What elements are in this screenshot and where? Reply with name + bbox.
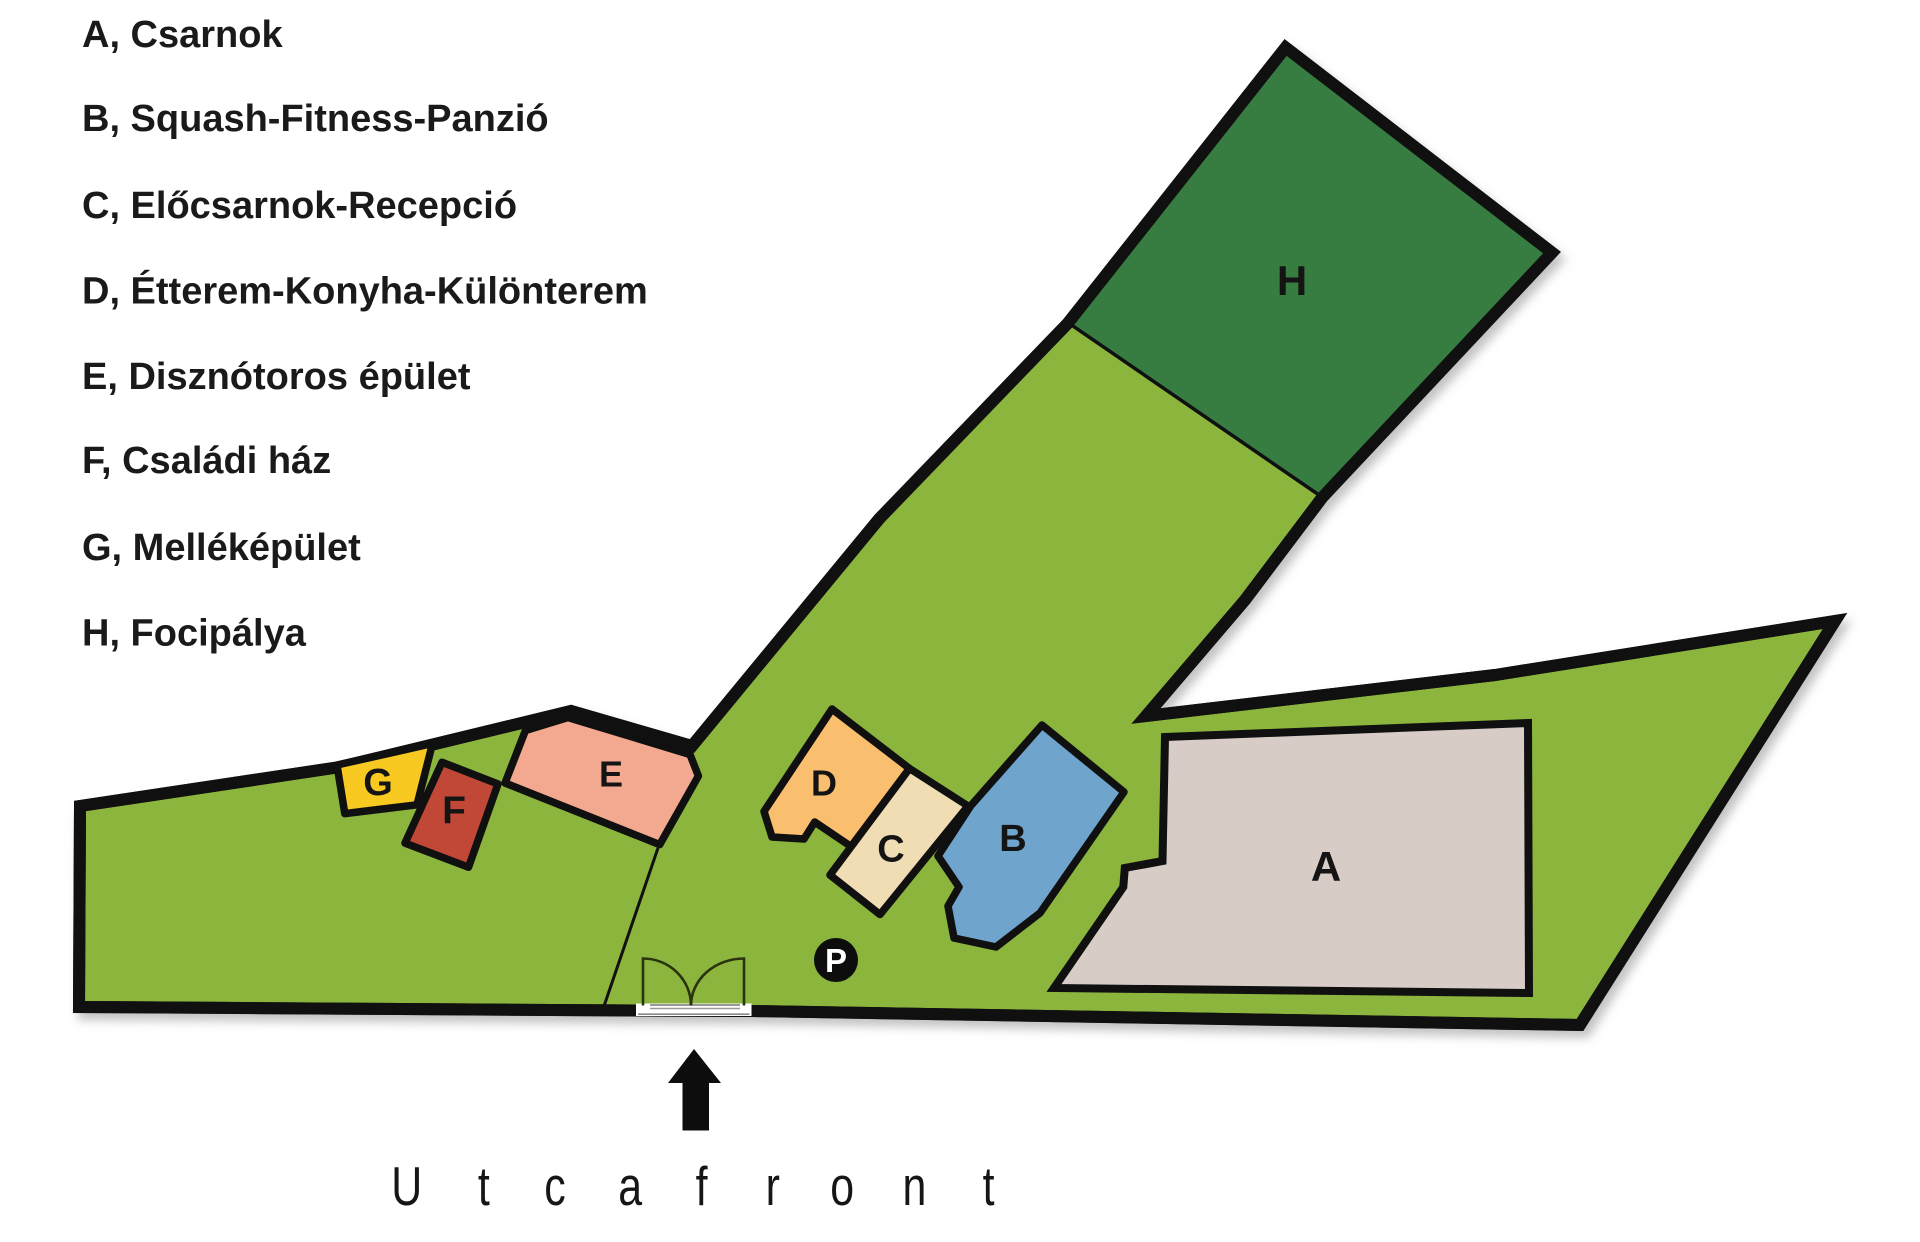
svg-text:F: F <box>442 789 466 832</box>
svg-text:t: t <box>478 1156 490 1217</box>
svg-text:E, Disznótoros épület: E, Disznótoros épület <box>82 356 471 398</box>
svg-text:A: A <box>1311 843 1341 890</box>
svg-text:F, Családi ház: F, Családi ház <box>82 440 331 482</box>
svg-text:n: n <box>902 1156 926 1217</box>
svg-text:B: B <box>999 818 1026 860</box>
svg-text:C, Előcsarnok-Recepció: C, Előcsarnok-Recepció <box>82 185 517 227</box>
svg-text:G: G <box>363 762 393 804</box>
svg-text:t: t <box>983 1156 995 1217</box>
svg-text:c: c <box>544 1156 565 1217</box>
svg-text:D, Étterem-Konyha-Különterem: D, Étterem-Konyha-Különterem <box>82 269 648 313</box>
svg-text:B, Squash-Fitness-Panzió: B, Squash-Fitness-Panzió <box>82 98 549 140</box>
svg-text:r: r <box>766 1156 780 1217</box>
svg-text:G, Melléképület: G, Melléképület <box>82 527 361 569</box>
svg-text:f: f <box>696 1156 708 1217</box>
svg-text:a: a <box>618 1156 642 1217</box>
svg-text:C: C <box>877 829 904 871</box>
svg-text:H: H <box>1277 257 1307 304</box>
svg-text:D: D <box>811 763 837 804</box>
svg-text:o: o <box>830 1156 854 1217</box>
svg-text:H, Focipálya: H, Focipálya <box>82 613 307 655</box>
svg-text:A, Csarnok: A, Csarnok <box>82 14 283 56</box>
svg-text:U: U <box>391 1156 422 1217</box>
svg-text:E: E <box>599 754 623 795</box>
svg-text:P: P <box>825 942 847 979</box>
